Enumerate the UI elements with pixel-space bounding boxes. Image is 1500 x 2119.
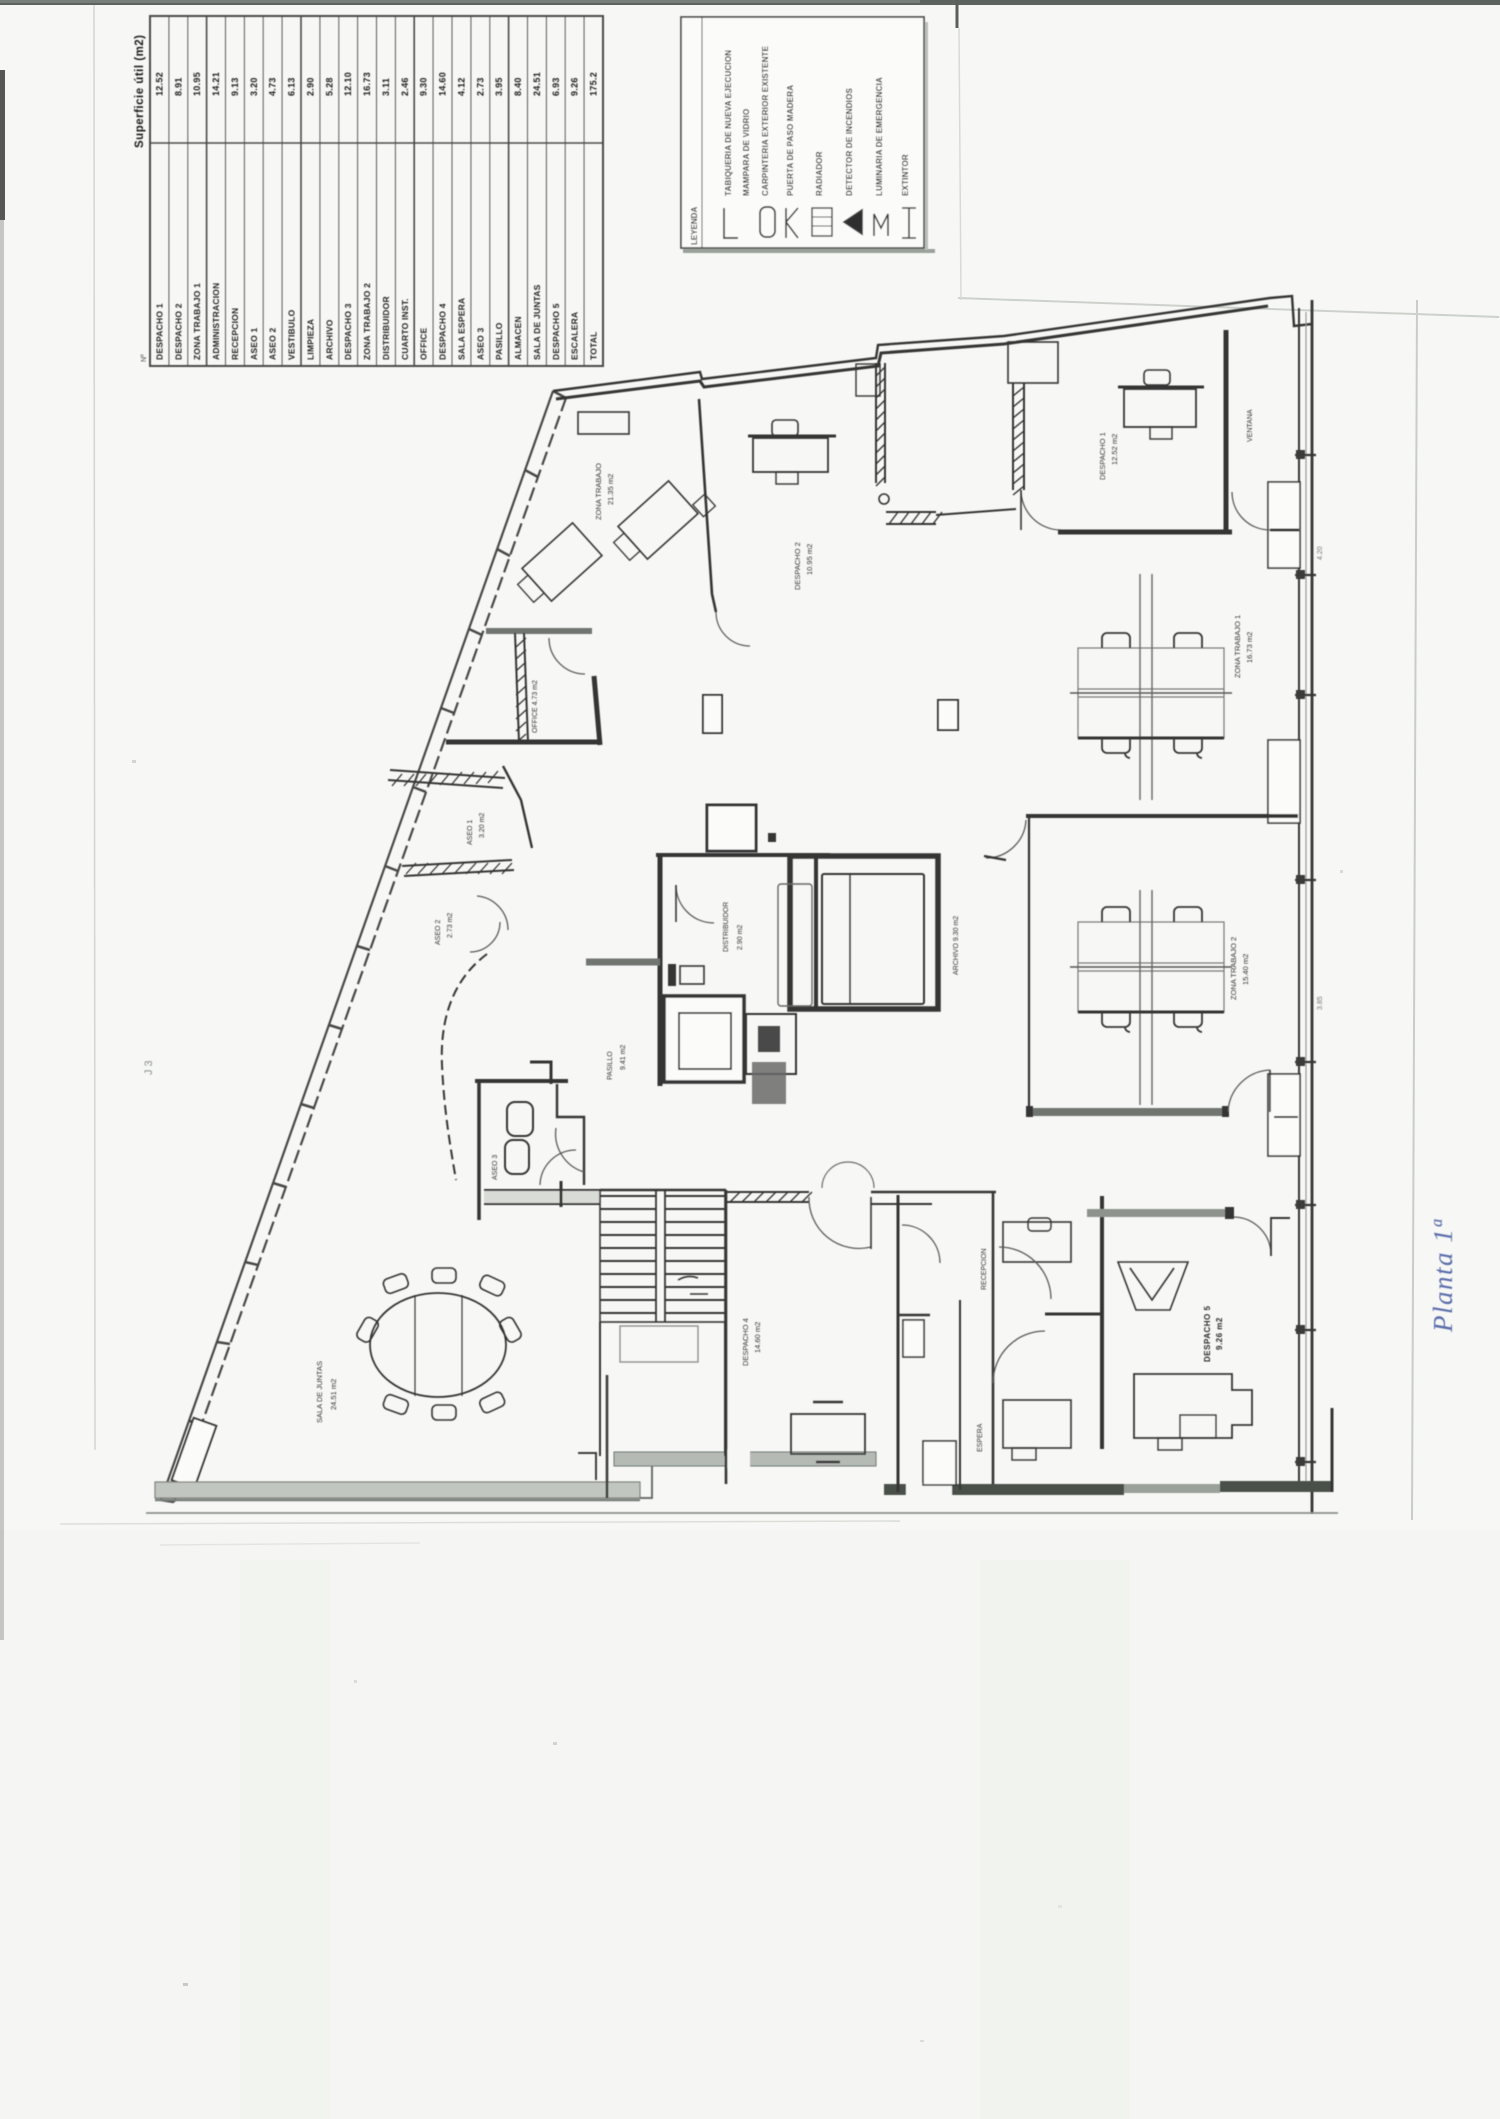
svg-text:ESPERA: ESPERA [977, 1423, 984, 1452]
svg-text:ARCHIVO: ARCHIVO [324, 319, 334, 360]
svg-text:LEYENDA: LEYENDA [690, 207, 699, 245]
svg-text:5.28: 5.28 [324, 77, 334, 96]
svg-text:LIMPIEZA: LIMPIEZA [305, 319, 315, 360]
svg-text:2.90: 2.90 [305, 77, 315, 96]
svg-text:4.12: 4.12 [456, 77, 466, 96]
svg-text:ZONA TRABAJO 1: ZONA TRABAJO 1 [1233, 615, 1242, 678]
svg-text:ASEO 3: ASEO 3 [475, 328, 485, 360]
svg-text:VENTANA: VENTANA [1247, 409, 1254, 442]
svg-text:9.13: 9.13 [230, 77, 240, 96]
svg-text:10.95 m2: 10.95 m2 [805, 544, 814, 575]
svg-text:DESPACHO 4: DESPACHO 4 [438, 303, 448, 360]
svg-text:DESPACHO 1: DESPACHO 1 [1098, 432, 1107, 480]
svg-text:175.2: 175.2 [589, 72, 599, 96]
svg-text:9.26 m2: 9.26 m2 [1215, 1317, 1224, 1350]
svg-text:2.90 m2: 2.90 m2 [737, 925, 744, 950]
svg-text:SALA DE JUNTAS: SALA DE JUNTAS [315, 1361, 324, 1423]
svg-text:9.30: 9.30 [419, 77, 429, 96]
svg-text:2.73: 2.73 [475, 77, 485, 96]
svg-text:14.60 m2: 14.60 m2 [753, 1322, 762, 1353]
svg-text:ASEO 3: ASEO 3 [492, 1155, 499, 1180]
svg-text:ADMINISTRACION: ADMINISTRACION [211, 283, 221, 360]
svg-text:3.95: 3.95 [494, 77, 504, 96]
svg-text:CUARTO INST.: CUARTO INST. [400, 298, 410, 360]
svg-text:PASILLO: PASILLO [494, 322, 504, 360]
svg-text:ASEO 2: ASEO 2 [268, 328, 278, 360]
svg-text:DESPACHO 5: DESPACHO 5 [1203, 1306, 1212, 1362]
svg-text:2.73 m2: 2.73 m2 [447, 913, 454, 938]
svg-text:14.21: 14.21 [211, 72, 221, 96]
svg-text:SALA ESPERA: SALA ESPERA [456, 298, 466, 360]
svg-text:ASEO 1: ASEO 1 [467, 820, 474, 845]
svg-text:4.20: 4.20 [1317, 546, 1324, 560]
svg-text:21.35 m2: 21.35 m2 [606, 474, 615, 505]
svg-text:DESPACHO 2: DESPACHO 2 [793, 542, 802, 590]
svg-text:12.52 m2: 12.52 m2 [1110, 434, 1119, 465]
svg-text:ZONA TRABAJO: ZONA TRABAJO [594, 463, 603, 520]
svg-text:SALA DE JUNTAS: SALA DE JUNTAS [532, 284, 542, 360]
svg-text:10.95: 10.95 [192, 72, 202, 96]
svg-text:2.46: 2.46 [400, 77, 410, 96]
svg-text:DESPACHO 5: DESPACHO 5 [551, 303, 561, 360]
svg-text:PASILLO: PASILLO [607, 1051, 614, 1080]
svg-text:CARPINTERIA EXTERIOR EXISTENTE: CARPINTERIA EXTERIOR EXISTENTE [761, 45, 770, 196]
svg-text:4.73: 4.73 [268, 77, 278, 96]
svg-text:DISTRIBUIDOR: DISTRIBUIDOR [723, 902, 730, 952]
svg-text:MAMPARA DE VIDRIO: MAMPARA DE VIDRIO [742, 109, 751, 196]
svg-text:ARCHIVO 9.30 m2: ARCHIVO 9.30 m2 [953, 916, 960, 975]
svg-text:16.73: 16.73 [362, 72, 372, 96]
svg-text:16.73 m2: 16.73 m2 [1245, 632, 1254, 663]
svg-text:ASEO 1: ASEO 1 [249, 328, 259, 360]
svg-text:OFFICE 4.73 m2: OFFICE 4.73 m2 [532, 680, 539, 733]
svg-text:ZONA TRABAJO 1: ZONA TRABAJO 1 [192, 283, 202, 360]
svg-text:J 3: J 3 [143, 1060, 155, 1075]
svg-text:Superficie útil (m2): Superficie útil (m2) [134, 34, 146, 148]
svg-text:8.40: 8.40 [513, 77, 523, 96]
svg-text:15.40 m2: 15.40 m2 [1241, 954, 1250, 985]
svg-text:3.20: 3.20 [249, 77, 259, 96]
svg-text:Planta 1ª: Planta 1ª [1428, 1219, 1458, 1333]
svg-text:DESPACHO 2: DESPACHO 2 [173, 303, 183, 360]
svg-text:RADIADOR: RADIADOR [815, 151, 824, 196]
svg-text:DESPACHO 4: DESPACHO 4 [741, 1318, 750, 1366]
svg-text:PUERTA DE PASO MADERA: PUERTA DE PASO MADERA [786, 85, 795, 196]
svg-text:ASEO 2: ASEO 2 [435, 920, 442, 945]
svg-text:LUMINARIA DE EMERGENCIA: LUMINARIA DE EMERGENCIA [875, 77, 884, 196]
svg-text:OFFICE: OFFICE [419, 328, 429, 360]
svg-text:12.10: 12.10 [343, 72, 353, 96]
svg-text:DESPACHO 3: DESPACHO 3 [343, 303, 353, 360]
svg-text:3.20 m2: 3.20 m2 [479, 813, 486, 838]
svg-text:14.60: 14.60 [438, 72, 448, 96]
svg-text:RECEPCION: RECEPCION [230, 308, 240, 360]
svg-text:24.51: 24.51 [532, 72, 542, 96]
svg-text:6.13: 6.13 [287, 77, 297, 96]
svg-text:9.26: 9.26 [570, 77, 580, 96]
svg-text:TOTAL: TOTAL [589, 331, 599, 360]
svg-text:VESTIBULO: VESTIBULO [287, 309, 297, 360]
svg-text:DISTRIBUIDOR: DISTRIBUIDOR [381, 296, 391, 360]
svg-text:ZONA TRABAJO 2: ZONA TRABAJO 2 [362, 283, 372, 360]
svg-text:3.11: 3.11 [381, 78, 391, 96]
svg-text:Nº: Nº [141, 354, 148, 362]
svg-text:12.52: 12.52 [154, 72, 164, 96]
svg-text:DETECTOR DE INCENDIOS: DETECTOR DE INCENDIOS [845, 87, 854, 196]
svg-text:ESCALERA: ESCALERA [570, 312, 580, 360]
svg-text:9.41 m2: 9.41 m2 [620, 1045, 627, 1070]
svg-text:EXTINTOR: EXTINTOR [901, 154, 910, 196]
svg-text:6.93: 6.93 [551, 77, 561, 96]
svg-text:8.91: 8.91 [173, 77, 183, 96]
svg-text:DESPACHO 1: DESPACHO 1 [154, 303, 164, 360]
svg-text:ALMACEN: ALMACEN [513, 316, 523, 360]
svg-text:24.51 m2: 24.51 m2 [329, 1379, 338, 1410]
svg-text:3.85: 3.85 [1317, 996, 1324, 1010]
svg-text:TABIQUERIA DE NUEVA EJECUCION: TABIQUERIA DE NUEVA EJECUCION [724, 50, 733, 196]
svg-text:RECEPCION: RECEPCION [981, 1248, 988, 1290]
svg-text:ZONA TRABAJO 2: ZONA TRABAJO 2 [1229, 937, 1238, 1000]
